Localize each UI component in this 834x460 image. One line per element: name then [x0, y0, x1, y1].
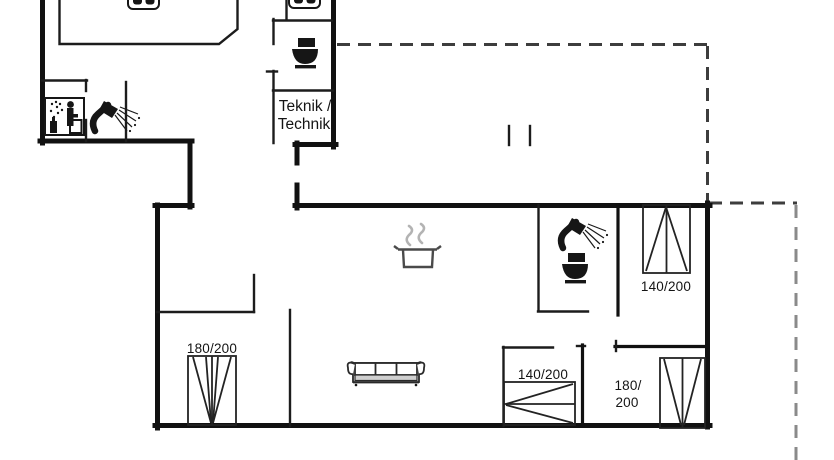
bed-bottom-middle	[504, 382, 575, 425]
teknik-room-label-line2: Technik	[278, 116, 331, 133]
cooking-pot-icon	[394, 224, 441, 267]
terrace-posts	[509, 126, 530, 145]
bed-size-label-bottom-left: 180/200	[187, 341, 237, 356]
toilet-bath-icon	[562, 253, 588, 283]
bed-bottom-right	[660, 358, 705, 428]
teknik-room-label-line1: Teknik /	[279, 98, 332, 115]
bed-size-label-bottom-right-line2: 200	[615, 395, 638, 410]
floorplan-canvas: Teknik / Technik 140/200 180/200 140/200…	[0, 0, 834, 460]
toilet-top-icon	[292, 38, 318, 68]
bed-size-label-bottom-right-line1: 180/	[614, 378, 641, 393]
floorplan-drawing: Teknik / Technik 140/200 180/200 140/200…	[0, 0, 834, 460]
double-sink-island-icon	[128, 0, 159, 9]
bed-top-right	[643, 205, 690, 273]
kitchen-island-outline	[60, 0, 238, 44]
shower-sauna-room-icon	[93, 101, 140, 132]
roof-overhang-dashed-outline	[337, 45, 797, 460]
bed-size-label-bottom-middle: 140/200	[518, 367, 568, 382]
sauna-icon	[45, 98, 84, 135]
double-sink-wc-icon	[289, 0, 320, 8]
sofa-icon	[348, 362, 425, 386]
bed-bottom-left	[188, 356, 236, 425]
shower-bath-icon	[561, 218, 608, 249]
bed-size-label-top-right: 140/200	[641, 279, 691, 294]
